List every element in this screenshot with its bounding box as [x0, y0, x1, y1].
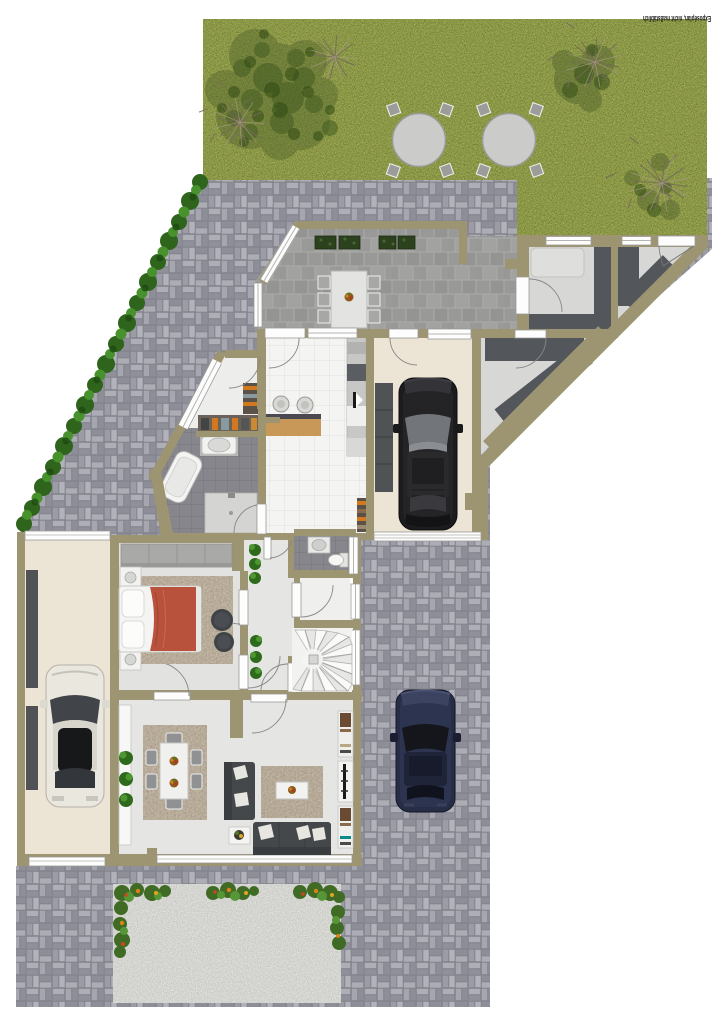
svg-text:Exposéplan, nicht maßstäblich: Exposéplan, nicht maßstäblich: [643, 14, 711, 23]
